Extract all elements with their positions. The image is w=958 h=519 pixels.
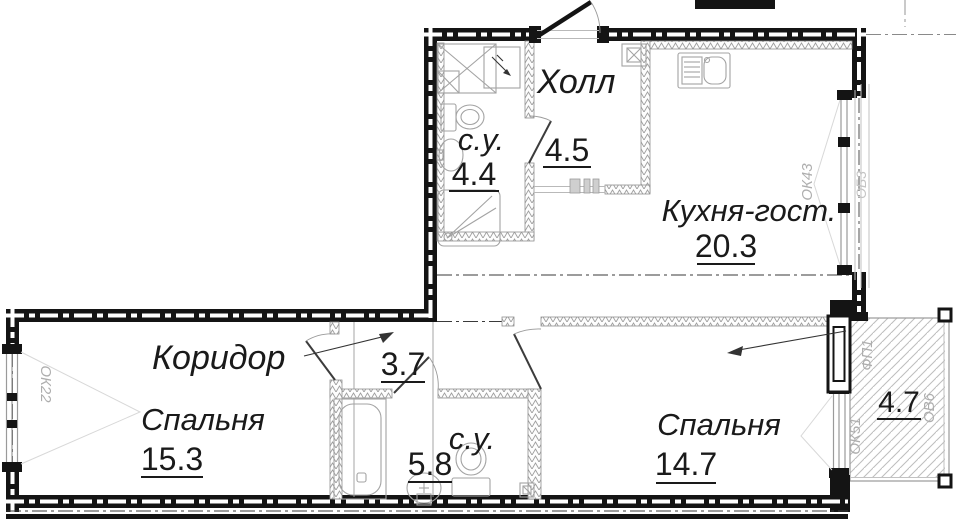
partition	[541, 317, 830, 326]
neighbor-wall	[695, 0, 775, 9]
window-ok51	[801, 386, 849, 478]
door-swing-arc	[306, 334, 335, 341]
direction-arrowhead	[727, 346, 743, 356]
partition	[502, 317, 514, 326]
window-opening-lines	[814, 100, 840, 265]
radiator-icon	[570, 179, 599, 193]
window-sash-mark	[838, 203, 850, 213]
partition	[330, 380, 342, 499]
room-label-bedroom-left: Спальня	[141, 402, 265, 437]
window-sash-mark	[7, 393, 17, 401]
balcony-bracket-bottom	[939, 475, 951, 487]
glazing-mark-ov6: ОВ6	[921, 392, 938, 423]
window-ok22	[2, 344, 140, 472]
balcony-door-fp1	[727, 316, 850, 392]
partition	[525, 41, 534, 118]
area-label-bedroom-right: 14.7	[655, 446, 717, 482]
room-label-bedroom-right: Спальня	[657, 407, 781, 442]
door-leaf	[514, 334, 541, 389]
window-mark-ok22: ОК22	[37, 365, 54, 403]
entrance-door	[529, 2, 609, 43]
wall-outer-face	[6, 514, 848, 519]
partition	[605, 185, 650, 194]
room-label-corridor: Коридор	[152, 339, 285, 377]
window-sash-mark	[7, 420, 17, 428]
wall-lining	[650, 41, 852, 49]
room-label-wc-top: с.у.	[458, 122, 504, 157]
floor-plan-drawing: Холл 4.5 с.у. 4.4 Кухня-гост. 20.3 Корид…	[0, 0, 958, 519]
room-label-wc-bottom: с.у.	[449, 421, 495, 456]
door-swing-arc	[514, 329, 541, 334]
kitchen-sink-icon	[678, 53, 730, 88]
window-opening-lines	[801, 396, 832, 470]
window-mark-ok43: ОК43	[799, 163, 816, 201]
balcony-door-leaf	[834, 327, 845, 381]
door-bedroom-right	[514, 329, 541, 389]
wall-segment	[850, 312, 868, 321]
door-bedroom-left	[306, 334, 335, 380]
area-label-corridor: 3.7	[381, 346, 425, 382]
electric-box-icon	[484, 47, 520, 88]
door-jamb	[597, 26, 609, 43]
window-mark-ok51: ОК51	[847, 417, 864, 454]
door-leaf	[306, 341, 335, 380]
area-label-hall: 4.5	[545, 132, 589, 168]
area-label-kitchen: 20.3	[695, 228, 757, 264]
area-label-balcony: 4.7	[878, 386, 920, 419]
partition	[330, 322, 339, 334]
balcony-bracket-top	[939, 309, 951, 321]
room-label-hall: Холл	[536, 63, 615, 101]
door-swing-arc	[429, 357, 438, 391]
area-label-wc-top: 4.4	[452, 156, 496, 192]
wall-segment	[830, 475, 850, 512]
door-mark-fp1: ФП1	[859, 339, 876, 370]
partition	[438, 389, 534, 398]
floor-plan: Холл 4.5 с.у. 4.4 Кухня-гост. 20.3 Корид…	[0, 0, 958, 519]
window-sash-mark	[838, 137, 850, 147]
glazing-mark-ob3: ОБ3	[853, 171, 869, 199]
area-label-wc-bottom: 5.8	[408, 446, 452, 482]
shower-cabin-icon	[438, 44, 496, 93]
area-label-bedroom-left: 15.3	[141, 441, 203, 477]
partition	[525, 163, 534, 240]
